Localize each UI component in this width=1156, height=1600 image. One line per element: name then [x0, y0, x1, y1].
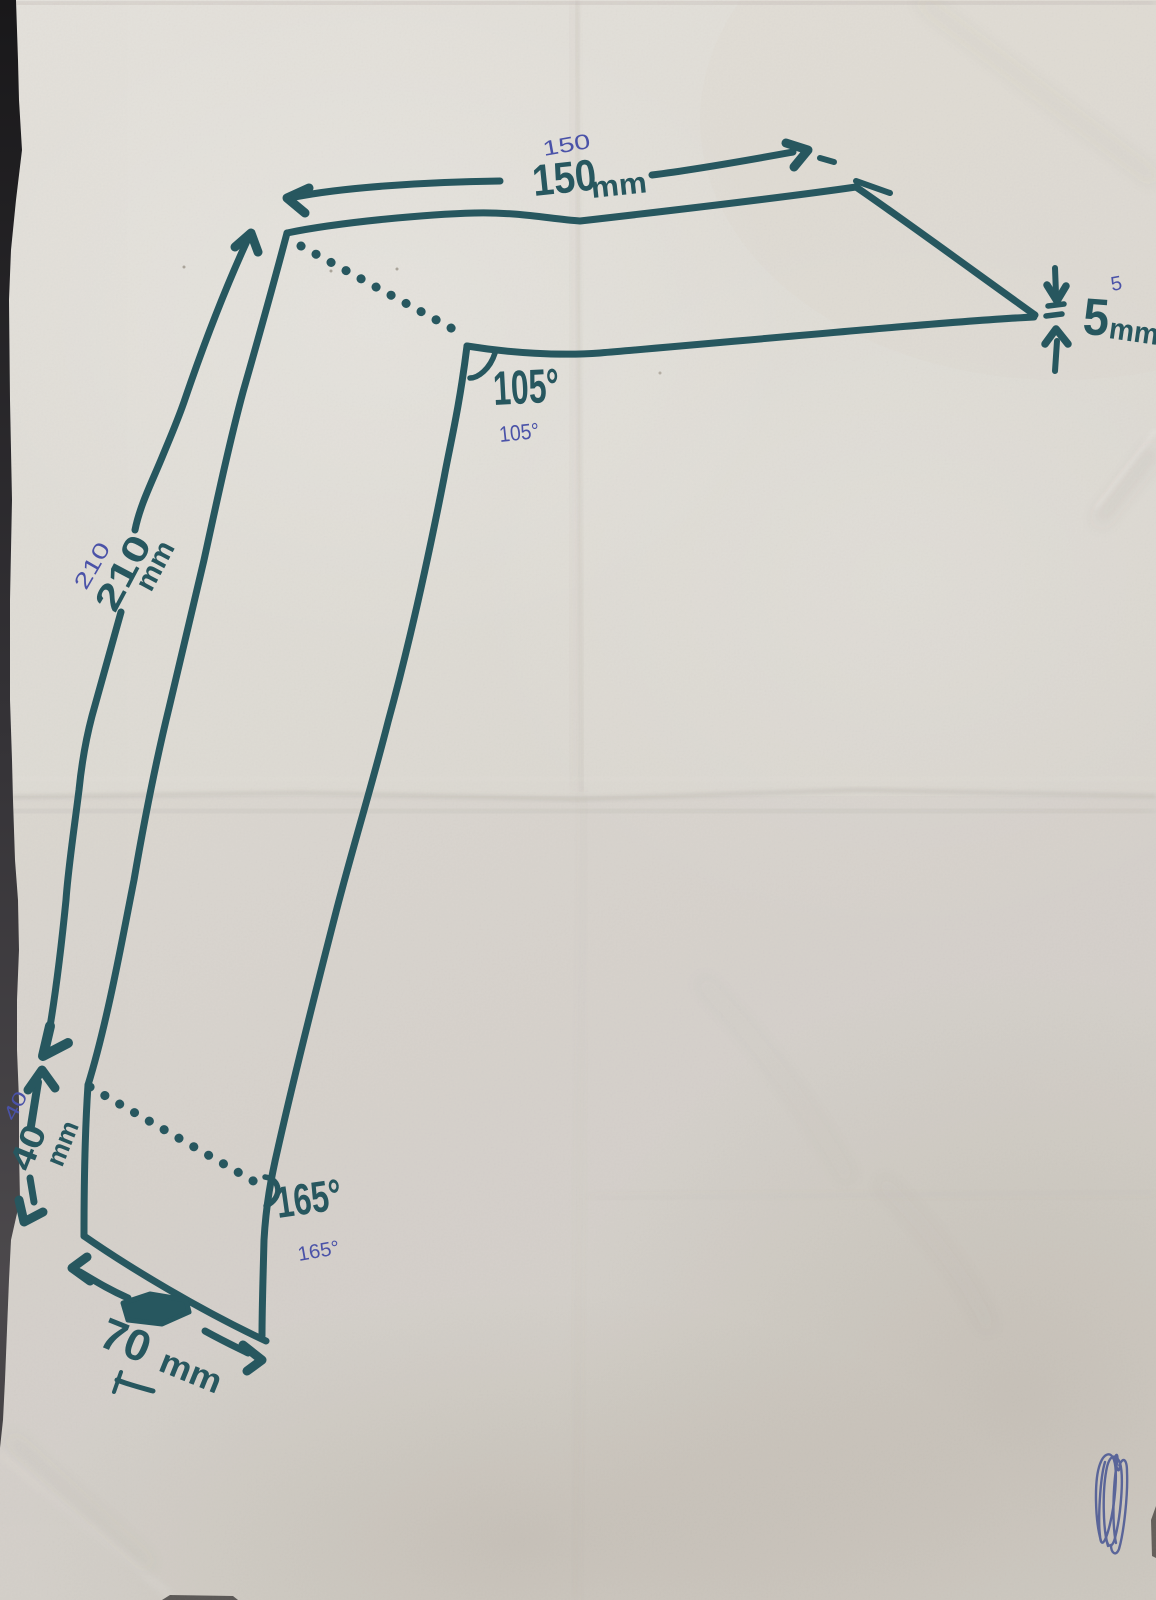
svg-text:165°: 165°: [273, 1170, 345, 1228]
svg-text:5: 5: [1081, 288, 1111, 348]
svg-text:mm: mm: [589, 166, 648, 205]
svg-text:mm: mm: [1107, 312, 1156, 352]
svg-text:105°: 105°: [498, 418, 540, 447]
svg-text:105°: 105°: [492, 360, 561, 416]
svg-text:150: 150: [530, 151, 599, 206]
